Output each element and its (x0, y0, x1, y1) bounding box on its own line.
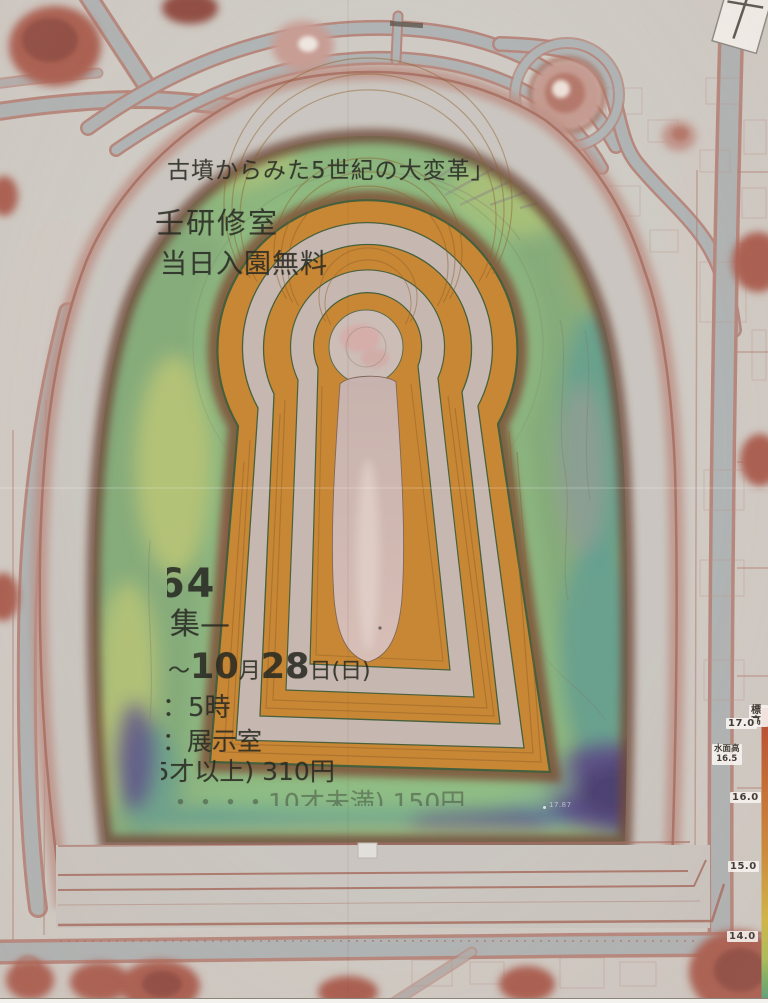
round-summit (329, 310, 403, 384)
photo-fold-line-vertical (347, 0, 349, 1003)
photo-bottom-edge (0, 998, 768, 1003)
flyer-time-line: ：5時 (162, 694, 231, 723)
date-month: 月 (239, 659, 261, 684)
photo-fold-line-horizontal (0, 487, 768, 489)
flyer-recruit-line: 集— (170, 608, 230, 641)
flyer-room-line: 壬研修室 (155, 208, 279, 240)
spot-elevation-label: 17.87 (549, 801, 572, 809)
kofun-lidar-map: 古墳からみた5世紀の大変革」 壬研修室 当日入園無料 64 集— ～10月28日… (0, 0, 768, 1003)
flyer-exhibit-room-line: ：展示室 (162, 728, 262, 756)
date-28: 28 (261, 647, 310, 687)
flyer-free-admission-line: 当日入園無料 (160, 250, 328, 280)
front-ridge (332, 376, 403, 662)
spot-elevation-dot (543, 806, 546, 809)
flyer-issue-number: 64 (167, 562, 216, 606)
bottom-banks (56, 842, 724, 928)
flyer-date-line: ～10月28日(日) (168, 648, 371, 687)
flyer-title: 古墳からみた5世紀の大変革」 (167, 159, 495, 184)
elevation-legend-bar (762, 708, 768, 1003)
flyer-price-line-1: 5才以上) 310円 (161, 758, 335, 786)
elevation-label-14: 14.0 (727, 931, 758, 942)
flyer-price-line-2: ・・・・10才未満) 150円 (168, 789, 465, 806)
elevation-label-16: 16.0 (730, 792, 761, 803)
date-tilde: ～ (168, 659, 190, 684)
date-10: 10 (190, 647, 239, 687)
small-building (358, 843, 377, 858)
elevation-label-17: 17.0 (726, 718, 757, 729)
water-level-label: 水面高 16.5 (712, 744, 742, 765)
elevation-label-15: 15.0 (728, 861, 759, 872)
date-day: 日(日) (309, 659, 370, 684)
elevation-map-art (0, 0, 768, 1003)
